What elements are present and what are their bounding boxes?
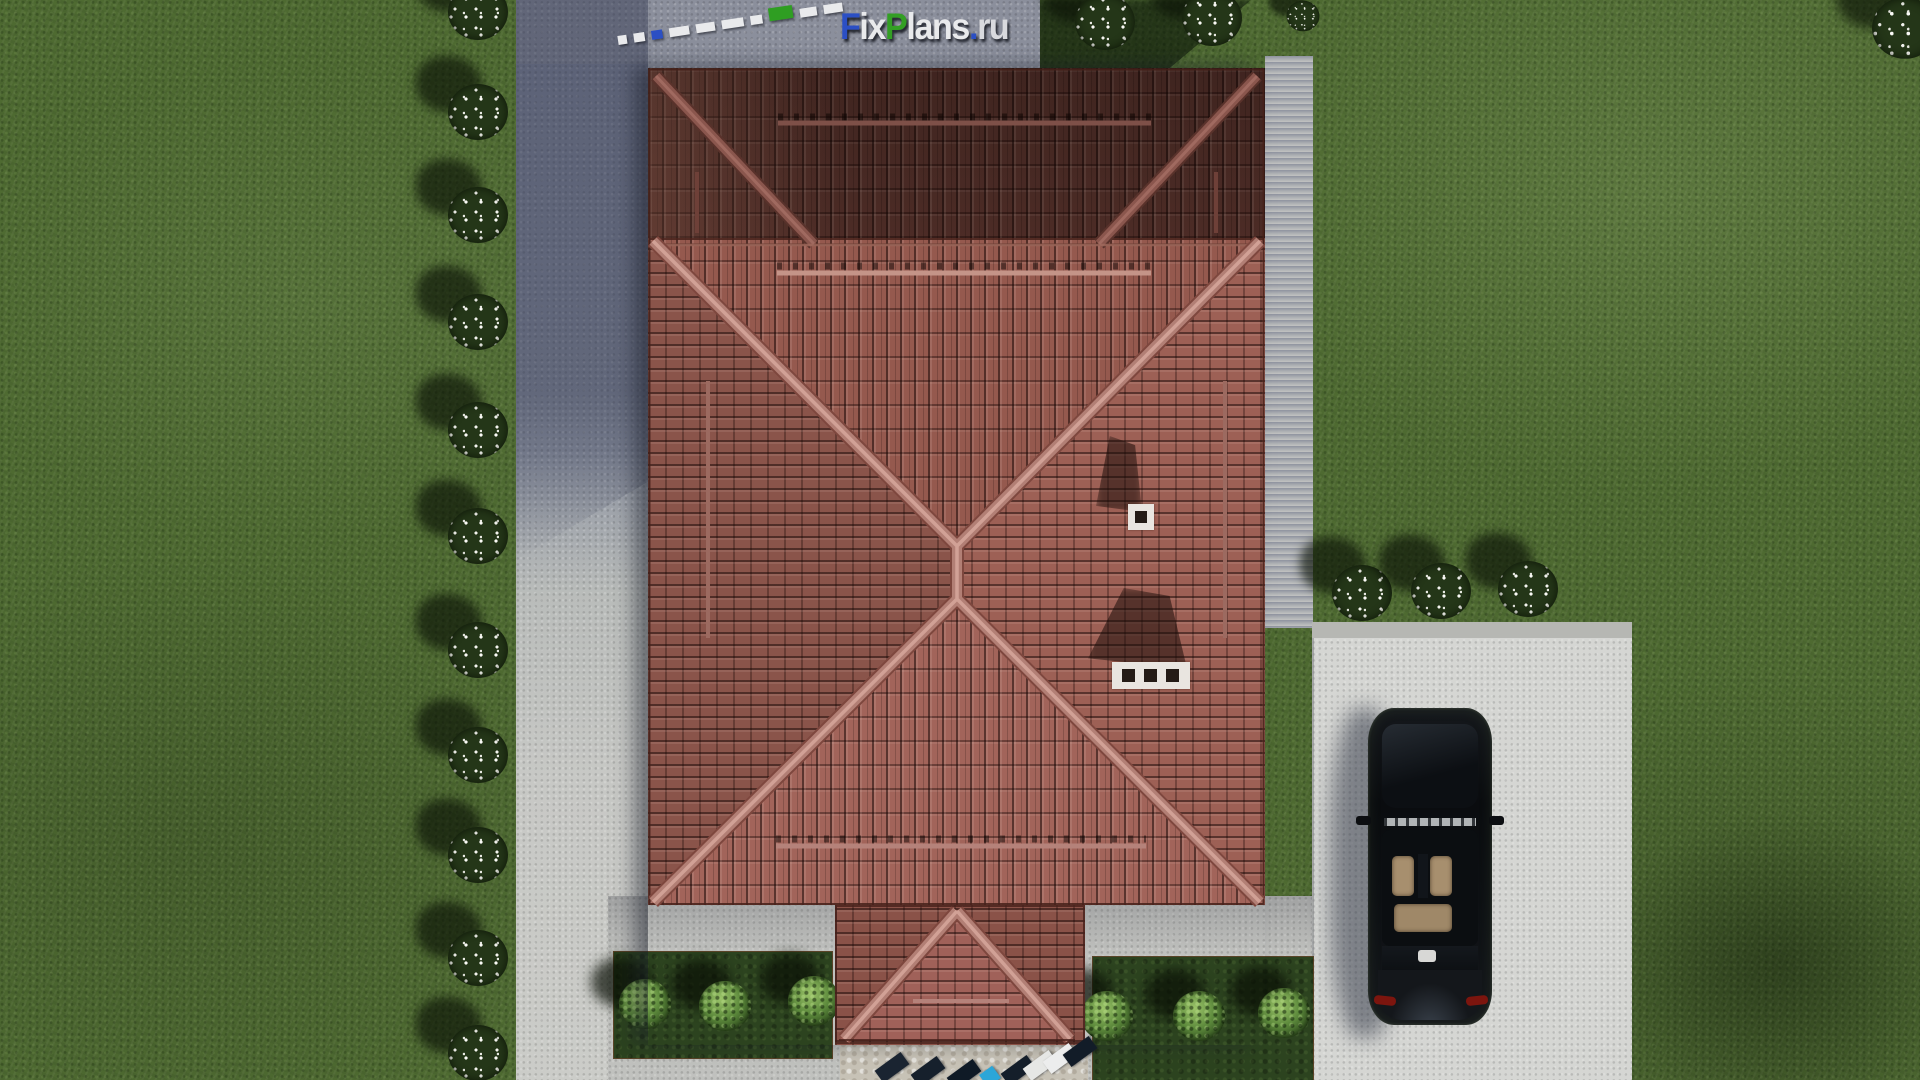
bush-flowers [448,1025,508,1080]
flower-bush [446,928,510,988]
bush-flowers [1287,1,1320,32]
bush-flowers [448,0,508,40]
bush-flowers [448,622,508,678]
flower-bush [446,725,510,785]
bush-flowers [448,727,508,783]
roof-antenna [1418,950,1436,962]
brand-letters-lans: lans [906,6,969,47]
car-hood-windshield [1382,724,1478,808]
rear-bench-seat [1394,904,1452,932]
flower-bush [446,620,510,680]
brand-letter-f: F [840,6,859,47]
bush-flowers [1182,0,1242,46]
front-seat-right [1430,856,1452,896]
watermark-logo: FixPlans.ru [612,0,1082,64]
flower-bush [446,400,510,460]
brand-letter-p: P [885,6,906,47]
bush-flowers [448,508,508,564]
house-shadow [516,0,648,560]
flower-bush [1870,0,1920,61]
front-seat-left [1392,856,1414,896]
flower-bush [446,82,510,142]
flower-bush [1180,0,1244,48]
ruler-dash-blue [651,29,663,40]
chimney-large [1112,662,1190,689]
bush-flowers [1872,0,1920,59]
aerial-house-render: FixPlans.ru [0,0,1920,1080]
chimney-flue [1144,669,1157,682]
flower-bush [1285,0,1320,33]
scale-ruler-graphic [617,1,843,47]
flower-bush [446,506,510,566]
bush-flowers [448,827,508,883]
ruler-dash-white [669,25,690,37]
chimney-small [1128,504,1154,530]
bush-flowers [448,84,508,140]
pad-curb [1312,622,1632,638]
ruler-dash-white [799,6,817,17]
flower-bush [446,292,510,352]
flower-bush [446,0,510,42]
brand-dot: . [969,6,977,47]
bush-flowers [1075,0,1135,50]
bush-flowers [448,402,508,458]
ruler-dash-white [617,35,627,45]
garage-fascia [650,70,1264,245]
brand-letters-ru: ru [977,6,1008,47]
garage-hip-light [656,76,1257,244]
roof-ridge-lines [648,68,1265,1045]
chimney-flue [1166,669,1179,682]
bush-flowers [1411,563,1471,619]
east-concrete-strip [1265,56,1313,628]
ruler-dash-white [633,32,645,43]
garage-hip-dark [656,76,1257,244]
bush-flowers [448,930,508,986]
ruler-dash-white [695,22,715,34]
flower-bush [1496,559,1560,619]
hip-roof-house [648,68,1265,1045]
ruler-dash-white [750,14,763,25]
black-sedan-top-view [1330,698,1510,1043]
garage-hip-mid [656,76,1257,244]
flower-bush [446,825,510,885]
bush-flowers [448,294,508,350]
bush-flowers [1498,561,1558,617]
flower-bush [446,185,510,245]
flower-bush [1073,0,1137,52]
chimney-flue [1135,511,1147,523]
side-mirror-right [1489,816,1504,825]
grass-dark-patch [1600,810,1920,1080]
ruler-dash-white [721,17,744,29]
bush-foliage [1258,988,1310,1038]
center-console [1418,854,1428,898]
brand-letters-ix: ix [859,6,885,47]
chimney-flue [1122,669,1135,682]
car-trunk [1378,970,1482,1020]
flower-bush [1409,561,1473,621]
wiper-cowl [1384,818,1476,826]
flower-bush [446,1023,510,1080]
side-mirror-left [1356,816,1371,825]
brand-text: FixPlans.ru [840,6,1008,48]
ruler-dash-green [768,5,794,21]
bush-flowers [448,187,508,243]
